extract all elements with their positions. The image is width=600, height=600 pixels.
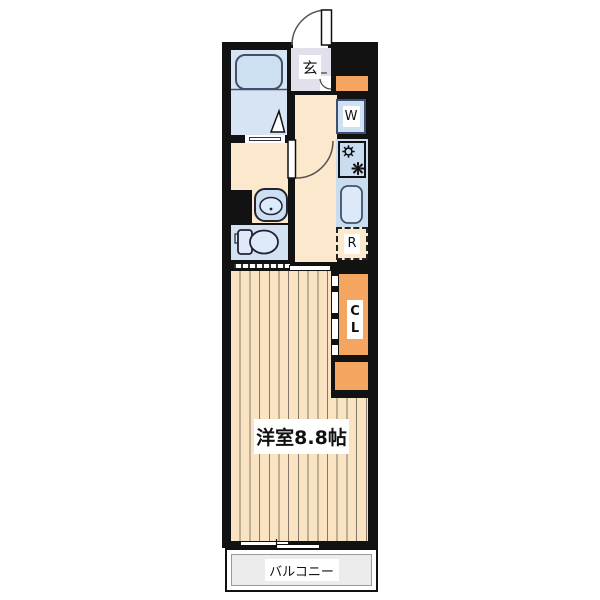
balcony-label: バルコニー — [265, 559, 339, 581]
hallway — [295, 95, 337, 262]
entrance-door-arc-icon — [292, 10, 327, 45]
stove — [338, 141, 366, 178]
main-room-label: 洋室8.8帖 — [254, 419, 349, 454]
washing-machine-space: W — [336, 99, 366, 134]
closet-letter-l: L — [351, 320, 359, 337]
washroom — [231, 143, 288, 190]
closet-letter-c: C — [350, 303, 360, 320]
entrance-step-notch — [320, 76, 331, 91]
closet-lower-block — [335, 362, 368, 390]
entrance-text: 玄 — [302, 57, 317, 78]
balcony: バルコニー — [225, 548, 378, 592]
entrance-door-opening — [293, 42, 328, 48]
main-room-text: 洋室8.8帖 — [256, 423, 347, 450]
hinge-mark — [332, 286, 338, 292]
bathroom-door-panel — [249, 137, 281, 141]
washbasin-niche — [252, 190, 288, 223]
hinge-mark — [332, 339, 338, 345]
sliding-door-icon — [233, 263, 291, 269]
fridge-letter: R — [347, 236, 356, 251]
floor-plan-canvas: W R バルコニー — [0, 0, 600, 600]
refrigerator-space: R — [336, 227, 368, 260]
toilet-room — [231, 225, 288, 260]
washer-label: W — [343, 106, 360, 127]
shoe-cabinet — [336, 76, 368, 91]
main-room-floor-upper — [231, 271, 331, 398]
fridge-label: R — [344, 234, 360, 254]
washer-letter: W — [345, 109, 358, 124]
hinge-mark — [332, 313, 338, 319]
closet-label: C L — [347, 300, 363, 339]
entrance-door-leaf — [322, 10, 332, 45]
folding-door-icon — [331, 276, 339, 355]
bathroom — [231, 50, 287, 135]
balcony-deck: バルコニー — [231, 554, 372, 586]
entrance-label: 玄 — [299, 55, 321, 79]
balcony-text: バルコニー — [269, 561, 334, 580]
